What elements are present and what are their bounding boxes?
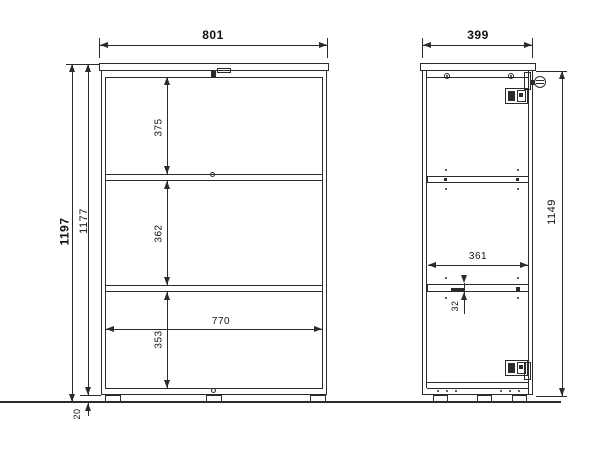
hinge-bolt (519, 365, 523, 369)
arrow-down-icon (461, 275, 467, 283)
cabinet-technical-drawing: 801 1197 1177 20 (0, 0, 601, 451)
arrow-up-icon (559, 71, 565, 79)
cam-lock-plate (217, 68, 231, 73)
screw-icon (446, 390, 448, 392)
door-edge (528, 70, 529, 395)
dim-line-middle-section (167, 181, 168, 285)
shelf-pin-icon (516, 178, 519, 181)
ext-line (99, 38, 100, 58)
plinth-line (427, 388, 529, 389)
arrow-left-icon (423, 42, 431, 48)
dim-line-inner-depth (428, 265, 528, 266)
arrow-left-icon (106, 326, 114, 332)
arrow-up-icon (461, 292, 467, 300)
inner-back-wall (426, 70, 427, 388)
carcass-outline (101, 70, 327, 395)
hinge-cup (508, 363, 515, 373)
shelf-pin-hole-icon (517, 277, 519, 279)
dim-label-inner-width: 770 (191, 316, 251, 327)
dim-line-top-section (167, 77, 168, 174)
arrow-down-icon (164, 380, 170, 388)
inner-bottom (427, 382, 529, 383)
dim-label-top-section: 375 (154, 98, 165, 158)
shelf-pin-hole-icon (517, 297, 519, 299)
dim-label-depth: 399 (448, 28, 508, 41)
arrow-up-icon (69, 64, 75, 72)
ground-line (0, 401, 561, 403)
dim-line-total-height (72, 64, 73, 402)
door-bumper-line (536, 80, 544, 81)
arrow-up-icon (164, 77, 170, 85)
dim-label-total-height: 1197 (58, 202, 71, 262)
arrow-right-icon (520, 262, 528, 268)
arrow-down-icon (164, 277, 170, 285)
shelf-lower (427, 284, 529, 292)
screw-icon (500, 390, 502, 392)
screw-icon (518, 390, 520, 392)
dim-line-depth (423, 45, 533, 46)
hinge-bolt (519, 93, 523, 97)
screw-center (446, 75, 448, 77)
shelf-pin-hole-icon (517, 188, 519, 190)
inner-wall-left (105, 77, 106, 388)
shelf-pin-hole-icon (517, 169, 519, 171)
arrow-right-icon (319, 42, 327, 48)
door-bumper-icon (534, 76, 546, 88)
arrow-right-icon (314, 326, 322, 332)
carcass-outline (422, 70, 533, 395)
shelf-upper (427, 176, 529, 183)
hinge-cup (508, 91, 515, 101)
dim-label-middle-section: 362 (154, 204, 165, 264)
cam-lock-icon (211, 70, 216, 78)
arrow-down-icon (559, 388, 565, 396)
dim-label-hole-pitch: 32 (450, 276, 460, 336)
ext-line (536, 396, 567, 397)
arrow-up-icon (164, 292, 170, 300)
ext-line (532, 38, 533, 58)
dim-label-front-width: 801 (183, 28, 243, 41)
ext-line (80, 395, 101, 396)
screw-icon (509, 390, 511, 392)
arrow-up-icon (85, 64, 91, 72)
dim-line-inner-height (562, 71, 563, 396)
arrow-down-icon (85, 387, 91, 395)
dim-label-bottom-section: 353 (154, 310, 165, 370)
dim-label-inner-depth: 361 (448, 251, 508, 262)
shelf-pin-hole-icon (211, 388, 216, 393)
arrow-up-icon (85, 403, 91, 411)
dim-label-foot-height: 20 (72, 384, 82, 444)
shelf-lower (105, 285, 323, 292)
inner-wall-right (322, 77, 323, 388)
arrow-left-icon (100, 42, 108, 48)
dim-line-inner-width (106, 329, 322, 330)
ext-line (422, 38, 423, 58)
arrow-left-icon (428, 262, 436, 268)
shelf-pin-hole-icon (445, 188, 447, 190)
arrow-right-icon (524, 42, 532, 48)
hinge-plate (524, 362, 531, 380)
screw-icon (455, 390, 457, 392)
shelf-pin-hole-icon (445, 169, 447, 171)
door-bumper-line (536, 83, 544, 84)
shelf-pin-hole-icon (445, 297, 447, 299)
screw-icon (437, 390, 439, 392)
dim-label-carcass-height: 1177 (78, 191, 90, 251)
ext-line (327, 38, 328, 58)
screw-center (510, 75, 512, 77)
shelf-pin-hole-icon (210, 172, 215, 177)
shelf-pin-icon (516, 287, 520, 291)
arrow-up-icon (164, 181, 170, 189)
arrow-down-icon (164, 166, 170, 174)
dim-line-bottom-section (167, 292, 168, 388)
shelf-pin-icon (444, 178, 447, 181)
shelf-pin-hole-icon (445, 277, 447, 279)
dim-label-inner-height: 1149 (546, 182, 558, 242)
dim-line-front-width (100, 45, 327, 46)
